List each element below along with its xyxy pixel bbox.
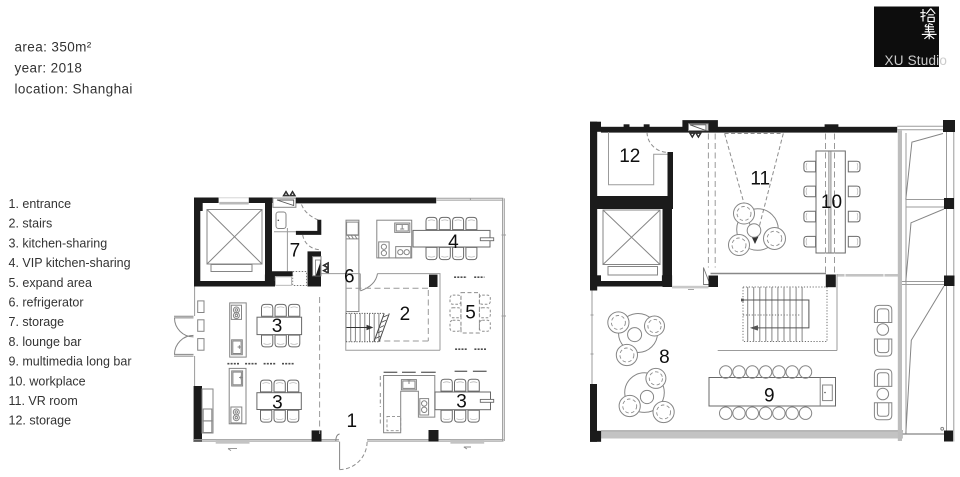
svg-text:11. VR room: 11. VR room: [9, 394, 78, 408]
svg-text:5: 5: [465, 303, 476, 324]
svg-text:1: 1: [347, 411, 358, 432]
svg-text:2. stairs: 2. stairs: [9, 217, 53, 231]
svg-text:1. entrance: 1. entrance: [9, 197, 72, 211]
svg-text:2: 2: [400, 304, 411, 325]
svg-text:4. VIP kitchen-sharing: 4. VIP kitchen-sharing: [9, 256, 131, 270]
svg-text:7. storage: 7. storage: [9, 315, 65, 329]
svg-text:4: 4: [448, 232, 459, 253]
svg-text:7: 7: [290, 240, 301, 261]
svg-text:10. workplace: 10. workplace: [9, 374, 86, 388]
svg-text:9. multimedia long bar: 9. multimedia long bar: [9, 355, 132, 369]
svg-text:3: 3: [272, 393, 283, 414]
svg-text:8. lounge bar: 8. lounge bar: [9, 335, 82, 349]
svg-text:XU Studio: XU Studio: [885, 53, 948, 68]
svg-text:10: 10: [821, 192, 842, 213]
svg-text:6. refrigerator: 6. refrigerator: [9, 296, 84, 310]
svg-text:8: 8: [659, 347, 670, 368]
svg-text:3. kitchen-sharing: 3. kitchen-sharing: [9, 236, 108, 250]
svg-text:6: 6: [344, 266, 355, 287]
svg-text:location: Shanghai: location: Shanghai: [15, 82, 133, 97]
svg-text:9: 9: [764, 386, 775, 407]
svg-text:5. expand area: 5. expand area: [9, 276, 92, 290]
svg-text:12: 12: [619, 146, 640, 167]
svg-text:12. storage: 12. storage: [9, 414, 72, 428]
svg-text:11: 11: [750, 169, 770, 190]
svg-text:3: 3: [272, 316, 283, 337]
svg-text:area: 350m²: area: 350m²: [15, 40, 92, 55]
svg-text:3: 3: [456, 391, 467, 412]
svg-text:year: 2018: year: 2018: [15, 61, 83, 76]
